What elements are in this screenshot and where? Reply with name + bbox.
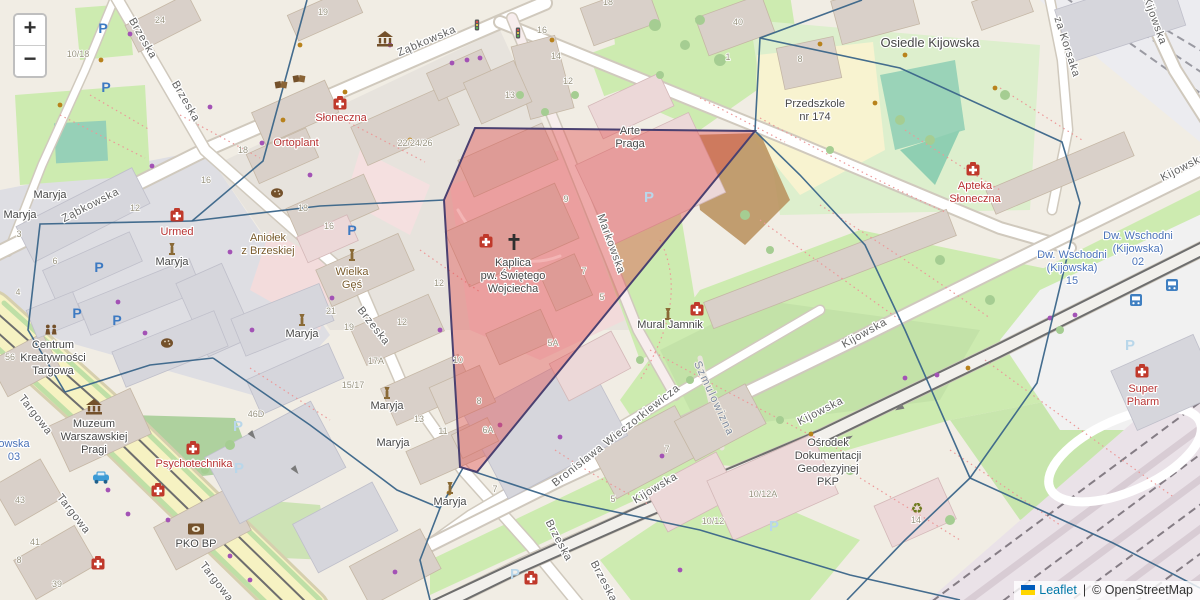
orange-poi-dot-icon <box>281 118 286 123</box>
poi-name-label: Maryja <box>33 189 67 201</box>
house-number-label: 40 <box>733 17 743 27</box>
zoom-control: + − <box>13 13 47 78</box>
purple-poi-dot-icon <box>935 373 940 378</box>
poi-name-label: Maryja <box>3 209 37 221</box>
svg-text:P: P <box>234 460 244 477</box>
house-number-label: 24 <box>155 15 165 25</box>
house-number-label: 16 <box>537 25 547 35</box>
house-number-label: 9 <box>563 194 568 204</box>
bus-icon <box>1166 279 1178 291</box>
map-canvas[interactable]: PPPPPPPPPPPP♻ ZąbkowskaZąbkowskaBrzeskaB… <box>0 0 1200 600</box>
house-number-label: 13 <box>505 90 515 100</box>
parking-light-icon: P <box>233 418 243 435</box>
house-number-label: 22/24/26 <box>397 138 432 148</box>
house-number-label: 15/17 <box>342 380 365 390</box>
purple-poi-dot-icon <box>250 328 255 333</box>
parking-icon: P <box>347 222 356 238</box>
svg-text:P: P <box>644 189 654 206</box>
svg-text:P: P <box>1125 337 1135 354</box>
poi-name-label: SuperPharm <box>1127 383 1159 408</box>
orange-poi-dot-icon <box>873 101 878 106</box>
orange-poi-dot-icon <box>903 53 908 58</box>
house-number-label: 13 <box>414 414 424 424</box>
house-number-label: 18 <box>603 0 613 7</box>
orange-poi-dot-icon <box>58 103 63 108</box>
orange-poi-dot-icon <box>993 86 998 91</box>
purple-poi-dot-icon <box>126 512 131 517</box>
purple-poi-dot-icon <box>465 58 470 63</box>
purple-poi-dot-icon <box>208 105 213 110</box>
parking-light-icon: P <box>234 460 244 477</box>
orange-poi-dot-icon <box>818 42 823 47</box>
house-number-label: 10/12A <box>749 489 778 499</box>
house-number-label: 12 <box>397 317 407 327</box>
purple-poi-dot-icon <box>330 296 335 301</box>
house-number-label: 19 <box>344 322 354 332</box>
purple-poi-dot-icon <box>228 554 233 559</box>
poi-name-label: Maryja <box>376 437 410 449</box>
purple-poi-dot-icon <box>106 488 111 493</box>
parking-icon: P <box>72 305 81 321</box>
house-number-label: 12 <box>130 203 140 213</box>
purple-poi-dot-icon <box>678 568 683 573</box>
purple-poi-dot-icon <box>143 331 148 336</box>
purple-poi-dot-icon <box>248 578 253 583</box>
house-number-label: 10 <box>453 355 463 365</box>
poi-name-label: Maryja <box>433 496 467 508</box>
palette-icon <box>271 188 283 198</box>
house-number-label: 1 <box>725 52 730 62</box>
orange-poi-dot-icon <box>809 432 814 437</box>
house-number-label: 12 <box>434 278 444 288</box>
zoom-out-button[interactable]: − <box>15 46 45 76</box>
parking-icon: P <box>101 79 110 95</box>
purple-poi-dot-icon <box>128 32 133 37</box>
purple-poi-dot-icon <box>478 56 483 61</box>
orange-poi-dot-icon <box>550 38 555 43</box>
bus-icon <box>1130 294 1142 306</box>
svg-text:P: P <box>112 312 121 328</box>
house-number-label: 8 <box>476 396 481 406</box>
svg-text:P: P <box>233 418 243 435</box>
house-number-label: 4 <box>15 287 20 297</box>
orange-poi-dot-icon <box>343 90 348 95</box>
house-number-label: 8 <box>16 555 21 565</box>
orange-poi-dot-icon <box>966 366 971 371</box>
orange-poi-dot-icon <box>298 43 303 48</box>
poi-name-label: Urmed <box>160 226 193 238</box>
poi-name-label: Słoneczna <box>315 112 367 124</box>
leaflet-link[interactable]: Leaflet <box>1039 583 1077 597</box>
poi-name-label: Maryja <box>285 328 319 340</box>
svg-text:P: P <box>769 518 779 535</box>
ukraine-flag-icon <box>1021 585 1035 595</box>
house-number-label: 46D <box>248 409 265 419</box>
purple-poi-dot-icon <box>116 300 121 305</box>
house-number-label: 7 <box>581 266 586 276</box>
purple-poi-dot-icon <box>450 61 455 66</box>
zoom-in-button[interactable]: + <box>15 15 45 46</box>
svg-text:P: P <box>510 566 520 583</box>
svg-text:P: P <box>101 79 110 95</box>
house-number-label: 3 <box>16 229 21 239</box>
purple-poi-dot-icon <box>438 328 443 333</box>
map-tiles: PPPPPPPPPPPP♻ ZąbkowskaZąbkowskaBrzeskaB… <box>0 0 1200 600</box>
purple-poi-dot-icon <box>393 570 398 575</box>
house-number-label: 16 <box>201 175 211 185</box>
poi-name-label: Osiedle Kijowska <box>881 35 981 50</box>
parking-light-icon: P <box>510 566 520 583</box>
purple-poi-dot-icon <box>228 250 233 255</box>
attribution-separator: | <box>1083 583 1086 597</box>
osm-attribution-text: © OpenStreetMap <box>1092 583 1193 597</box>
house-number-label: 7 <box>492 484 497 494</box>
house-number-label: 14 <box>551 51 561 61</box>
purple-poi-dot-icon <box>1073 313 1078 318</box>
house-number-label: 6A <box>482 425 493 435</box>
house-number-label: 17A <box>368 356 384 366</box>
money-icon <box>188 524 204 535</box>
orange-poi-dot-icon <box>99 58 104 63</box>
house-number-label: 41 <box>30 537 40 547</box>
parking-light-icon: P <box>769 518 779 535</box>
house-number-label: 43 <box>15 495 25 505</box>
house-number-label: 16 <box>324 221 334 231</box>
poi-name-label: Maryja <box>155 256 189 268</box>
parking-icon: P <box>112 312 121 328</box>
house-number-label: 5 <box>599 292 604 302</box>
purple-poi-dot-icon <box>166 518 171 523</box>
purple-poi-dot-icon <box>260 141 265 146</box>
attribution-bar: Leaflet | © OpenStreetMap <box>1014 581 1200 600</box>
poi-name-label: Psychotechnika <box>155 458 233 470</box>
house-number-label: 56 <box>5 352 15 362</box>
parking-icon: P <box>94 259 103 275</box>
purple-poi-dot-icon <box>558 435 563 440</box>
traffic-light-icon <box>475 20 479 31</box>
parking-icon: P <box>98 20 107 36</box>
house-number-label: 18 <box>298 203 308 213</box>
poi-name-label: Ortoplant <box>273 137 318 149</box>
house-number-label: 11 <box>438 426 447 436</box>
svg-text:P: P <box>94 259 103 275</box>
house-number-label: 5 <box>610 494 615 504</box>
poi-name-label: Mural Jamnik <box>637 319 703 331</box>
house-number-label: 21 <box>326 306 336 316</box>
house-number-label: 39 <box>52 579 62 589</box>
house-number-label: 12 <box>563 76 573 86</box>
purple-poi-dot-icon <box>903 376 908 381</box>
house-number-label: 10/12 <box>702 516 725 526</box>
svg-text:P: P <box>347 222 356 238</box>
purple-poi-dot-icon <box>308 173 313 178</box>
palette-icon <box>161 338 173 348</box>
parking-light-icon: P <box>1125 337 1135 354</box>
house-number-label: 8 <box>797 54 802 64</box>
house-number-label: 14 <box>911 515 921 525</box>
traffic-light-icon <box>516 28 520 39</box>
parking-light-icon: P <box>644 189 654 206</box>
house-number-label: 7 <box>664 444 669 454</box>
house-number-label: 18 <box>238 145 248 155</box>
purple-poi-dot-icon <box>150 164 155 169</box>
house-number-label: 19 <box>318 7 328 17</box>
house-number-label: 6 <box>52 256 57 266</box>
svg-text:P: P <box>72 305 81 321</box>
purple-poi-dot-icon <box>660 454 665 459</box>
poi-name-label: Maryja <box>370 400 404 412</box>
svg-text:P: P <box>98 20 107 36</box>
poi-name-label: PKO BP <box>176 538 217 550</box>
house-number-label: 5A <box>547 338 558 348</box>
house-number-label: 10/18 <box>67 49 90 59</box>
